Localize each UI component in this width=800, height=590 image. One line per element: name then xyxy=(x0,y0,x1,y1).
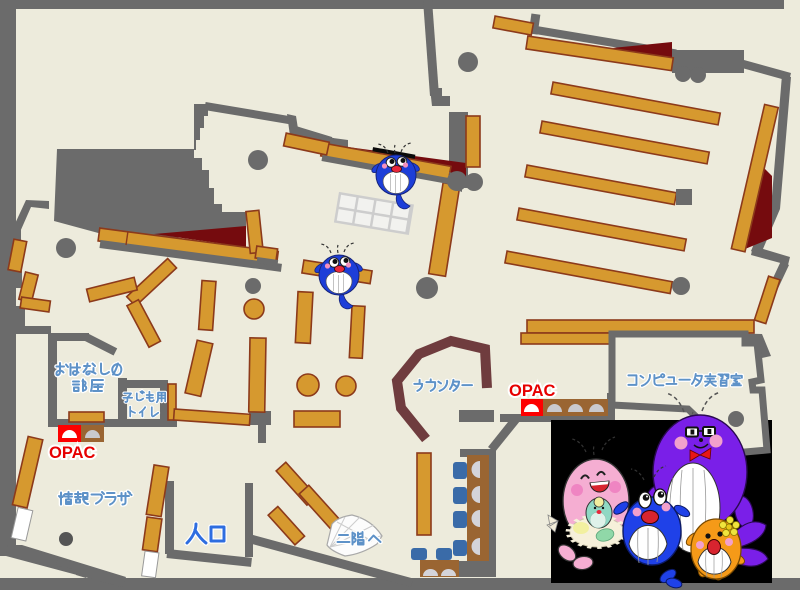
svg-text:OPAC: OPAC xyxy=(49,444,96,462)
svg-text:OPAC: OPAC xyxy=(509,382,556,400)
